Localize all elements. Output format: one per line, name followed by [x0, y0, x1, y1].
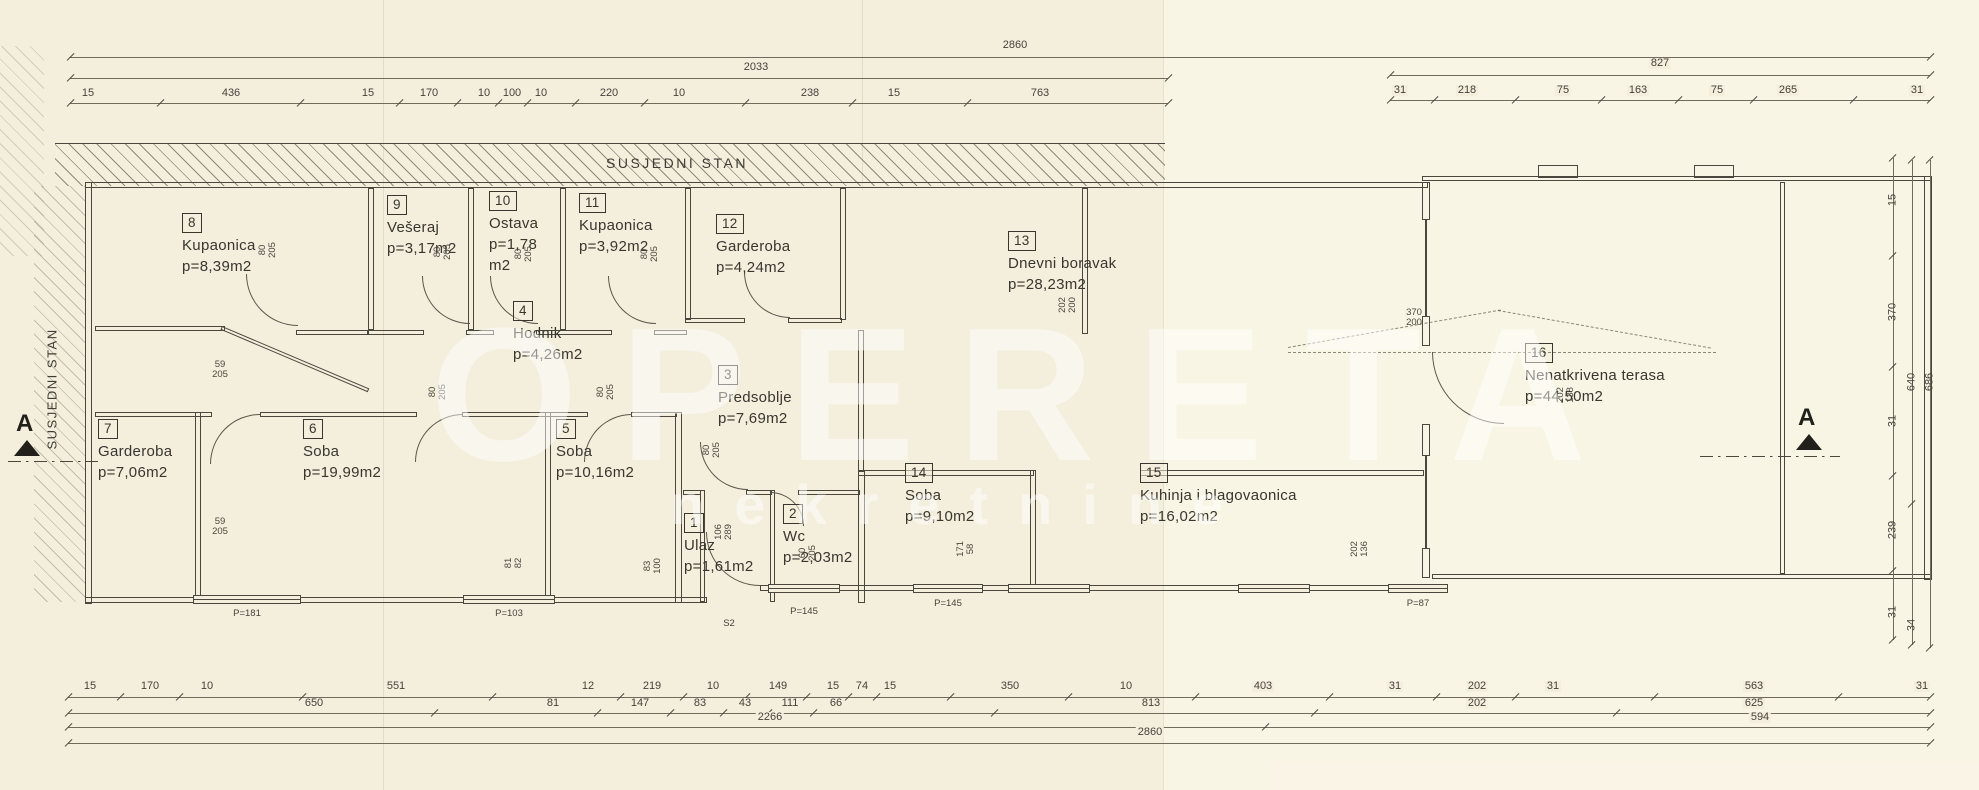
neighbor-label-top: SUSJEDNI STAN: [606, 155, 748, 171]
section-triangle-right: [1796, 434, 1822, 450]
floorplan-scan: 2860203382715436151701010010220102381576…: [0, 0, 1979, 790]
window-label: P=145: [934, 598, 962, 609]
section-marker-a-left: A: [16, 412, 33, 436]
section-marker-a-right: A: [1798, 406, 1815, 430]
window-label: P=103: [495, 608, 523, 619]
window-label: S2: [723, 618, 735, 629]
window-labels-layer: P=181P=103S2P=145P=145P=87: [0, 0, 1979, 790]
canopy-dashed-line: [1288, 352, 1716, 353]
section-line-left: [8, 461, 98, 462]
section-line-right: [1700, 456, 1840, 457]
window-label: P=181: [233, 608, 261, 619]
neighbor-label-left: SUSJEDNI STAN: [45, 310, 60, 450]
window-label: P=145: [790, 606, 818, 617]
section-triangle-left: [14, 440, 40, 456]
window-label: P=87: [1407, 598, 1429, 609]
